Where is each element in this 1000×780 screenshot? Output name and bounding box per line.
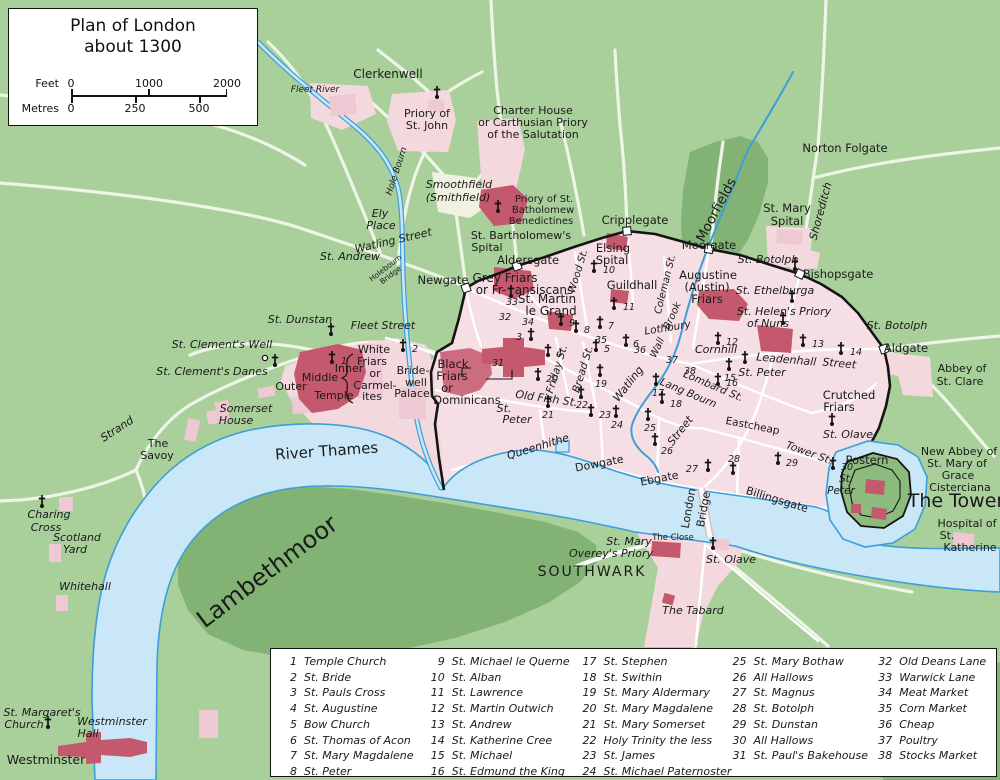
legend-entry-name: St. Katherine Cree bbox=[452, 733, 552, 749]
legend-column-3: 17St. Stephen18St. Swithin19St. Mary Ald… bbox=[580, 654, 730, 774]
scale-tick bbox=[226, 89, 228, 95]
legend-entry-23: 23St. James bbox=[580, 748, 730, 764]
legend-entry-name: St. Mary Aldermary bbox=[603, 685, 709, 701]
church-number-21: 21 bbox=[542, 410, 554, 421]
legend-entry-name: All Hallows bbox=[753, 670, 813, 686]
church-number-7: 7 bbox=[608, 321, 614, 332]
legend-entry-3: 3St. Pauls Cross bbox=[281, 685, 429, 701]
st-martin-2: le Grand bbox=[525, 304, 576, 318]
moorgate: Moorgate bbox=[682, 238, 736, 252]
cripplegate-gate bbox=[623, 227, 632, 236]
st-peter-cornhill: St. Peter bbox=[738, 366, 787, 379]
legend-entry-number: 31 bbox=[730, 748, 746, 764]
legend-entry-26: 26All Hallows bbox=[730, 670, 876, 686]
st-peter-wharf-2: Peter bbox=[502, 413, 532, 426]
st-clements-danes: St. Clement's Danes bbox=[156, 365, 268, 378]
cornhill: Cornhill bbox=[695, 343, 737, 356]
legend-entry-number: 38 bbox=[876, 748, 892, 764]
legend-entry-number: 17 bbox=[580, 654, 596, 670]
legend-entry-number: 23 bbox=[580, 748, 596, 764]
legend-entry-27: 27St. Magnus bbox=[730, 685, 876, 701]
charing-cross-1: Charing bbox=[28, 508, 71, 521]
legend-entry-name: St. Lawrence bbox=[452, 685, 523, 701]
legend-entry-16: 16St. Edmund the King bbox=[429, 764, 581, 780]
aldersgate: Aldersgate bbox=[497, 253, 559, 267]
scale-metres-label: Metres bbox=[11, 102, 59, 115]
legend-entry-name: St. Michael le Querne bbox=[452, 654, 570, 670]
legend-entry-10: 10St. Alban bbox=[429, 670, 581, 686]
num-33: 33 bbox=[506, 297, 518, 308]
scale-tick bbox=[71, 89, 73, 95]
legend-entry-name: Stocks Market bbox=[899, 748, 977, 764]
legend-entry-37: 37Poultry bbox=[876, 733, 994, 749]
legend-entry-number: 30 bbox=[730, 733, 746, 749]
legend-entry-name: Holy Trinity the less bbox=[603, 733, 712, 749]
bridewell-3: Palace bbox=[394, 387, 430, 400]
legend-entry-number: 34 bbox=[876, 685, 892, 701]
st-dunstan-west: St. Dunstan bbox=[268, 313, 332, 326]
black-friars-4: Dominicans bbox=[433, 393, 500, 407]
legend-entry-number: 18 bbox=[580, 670, 596, 686]
st-botolph-aldgate: St. Botolph bbox=[867, 319, 928, 332]
legend-entry-name: All Hallows bbox=[753, 733, 813, 749]
cripplegate: Cripplegate bbox=[602, 213, 669, 227]
temple: Temple bbox=[313, 389, 353, 402]
westminster-hall-2: Hall bbox=[77, 727, 98, 740]
legend-entry-name: Poultry bbox=[899, 733, 938, 749]
the-tower: The Tower bbox=[907, 490, 1000, 512]
the-savoy-2: Savoy bbox=[140, 449, 174, 462]
legend-entry-number: 4 bbox=[281, 701, 297, 717]
st-mary-overey-building bbox=[651, 541, 681, 558]
legend-entry-24: 24St. Michael Paternoster bbox=[580, 764, 730, 780]
crutched-friars-2: Friars bbox=[823, 400, 854, 414]
church-number-27: 27 bbox=[686, 464, 698, 475]
legend-entry-number: 11 bbox=[429, 685, 445, 701]
legend-entry-name: St. Bride bbox=[304, 670, 351, 686]
legend-entry-number: 27 bbox=[730, 685, 746, 701]
legend-entry-name: St. Paul's Bakehouse bbox=[753, 748, 868, 764]
legend-entry-name: Temple Church bbox=[304, 654, 386, 670]
church-number-19: 19 bbox=[595, 379, 607, 390]
st-mary-spital-2: Spital bbox=[771, 214, 804, 228]
st-andrew: St. Andrew bbox=[320, 250, 380, 263]
scale-metres-250: 250 bbox=[125, 102, 146, 115]
legend-entry-31: 31St. Paul's Bakehouse bbox=[730, 748, 876, 764]
legend-entry-name: St. Mary Bothaw bbox=[753, 654, 843, 670]
legend-entry-number: 12 bbox=[429, 701, 445, 717]
map-title-line2: about 1300 bbox=[9, 37, 257, 57]
legend-entry-number: 21 bbox=[580, 717, 596, 733]
church-number-9: 9 bbox=[569, 318, 575, 329]
map-stage: 1234567891011121314151617181920212223242… bbox=[0, 0, 1000, 780]
scale-metres-0: 0 bbox=[68, 102, 75, 115]
church-number-25: 25 bbox=[644, 423, 656, 434]
num-37: 37 bbox=[666, 355, 678, 366]
legend-entry-6: 6St. Thomas of Acon bbox=[281, 733, 429, 749]
num-35: 35 bbox=[595, 335, 607, 346]
legend-entry-32: 32Old Deans Lane bbox=[876, 654, 994, 670]
num-31: 31 bbox=[492, 358, 504, 369]
legend-entry-name: St. Stephen bbox=[603, 654, 667, 670]
legend-entry-number: 2 bbox=[281, 670, 297, 686]
title-box: Plan of London about 1300 Feet 0 1000 20… bbox=[8, 8, 258, 126]
white-friars-5: ites bbox=[362, 390, 382, 403]
legend-entry-8: 8St. Peter bbox=[281, 764, 429, 780]
legend-entry-number: 10 bbox=[429, 670, 445, 686]
legend-entry-21: 21St. Mary Somerset bbox=[580, 717, 730, 733]
legend-entry-name: St. Michael bbox=[452, 748, 512, 764]
legend-entry-name: St. Peter bbox=[304, 764, 351, 780]
scale-bar bbox=[71, 95, 227, 97]
church-number-14: 14 bbox=[850, 347, 862, 358]
legend-entry-name: St. Magnus bbox=[753, 685, 814, 701]
legend-entry-28: 28St. Botolph bbox=[730, 701, 876, 717]
clerkenwell: Clerkenwell bbox=[353, 67, 422, 81]
scale-metres-500: 500 bbox=[189, 102, 210, 115]
whitehall: Whitehall bbox=[59, 580, 111, 593]
num-32: 32 bbox=[499, 312, 511, 323]
st-helens-2: of Nuns bbox=[747, 317, 789, 330]
austin-friars-3: Friars bbox=[691, 292, 722, 306]
postern: Postern bbox=[846, 453, 889, 467]
legend-entry-number: 5 bbox=[281, 717, 297, 733]
church-number-24: 24 bbox=[611, 420, 623, 431]
legend-entry-number: 16 bbox=[429, 764, 445, 780]
legend-entry-number: 33 bbox=[876, 670, 892, 686]
legend-entry-22: 22Holy Trinity the less bbox=[580, 733, 730, 749]
church-number-2: 2 bbox=[412, 344, 418, 355]
legend-entry-name: St. Michael Paternoster bbox=[603, 764, 731, 780]
legend-column-1: 1Temple Church2St. Bride3St. Pauls Cross… bbox=[281, 654, 429, 774]
the-tabard: The Tabard bbox=[662, 604, 725, 617]
st-ethelburga: St. Ethelburga bbox=[736, 284, 815, 297]
tower-building-3 bbox=[871, 507, 887, 520]
legend-entry-1: 1Temple Church bbox=[281, 654, 429, 670]
legend-entry-number: 13 bbox=[429, 717, 445, 733]
st-botolph-bishopsgate: St. Botolph bbox=[738, 253, 799, 266]
fleet-river: Fleet River bbox=[291, 85, 341, 95]
legend-entry-18: 18St. Swithin bbox=[580, 670, 730, 686]
legend-entry-name: St. Dunstan bbox=[753, 717, 817, 733]
legend-entry-4: 4St. Augustine bbox=[281, 701, 429, 717]
legend-entry-number: 9 bbox=[429, 654, 445, 670]
church-number-18: 18 bbox=[670, 399, 682, 410]
legend-entry-number: 3 bbox=[281, 685, 297, 701]
legend-entry-name: St. Mary Somerset bbox=[603, 717, 705, 733]
aldgate: Aldgate bbox=[884, 341, 928, 355]
fleet-street: Fleet Street bbox=[351, 319, 416, 332]
legend-entry-name: St. Andrew bbox=[452, 717, 512, 733]
legend-entry-number: 37 bbox=[876, 733, 892, 749]
st-margarets-2: Church bbox=[4, 718, 43, 731]
st-mary-spital-1: St. Mary bbox=[763, 201, 811, 215]
legend-entry-11: 11St. Lawrence bbox=[429, 685, 581, 701]
legend-entry-29: 29St. Dunstan bbox=[730, 717, 876, 733]
legend-entry-number: 32 bbox=[876, 654, 892, 670]
hospital-katherine-3: Katherine bbox=[943, 541, 996, 554]
legend-entry-38: 38Stocks Market bbox=[876, 748, 994, 764]
legend-entry-number: 35 bbox=[876, 701, 892, 717]
legend-column-2: 9St. Michael le Querne10St. Alban11St. L… bbox=[429, 654, 581, 774]
legend-entry-number: 15 bbox=[429, 748, 445, 764]
num-34: 34 bbox=[522, 317, 534, 328]
st-clements-well: St. Clement's Well bbox=[172, 338, 273, 351]
abbey-st-clare-1: Abbey of bbox=[938, 362, 988, 375]
legend-entry-name: St. Martin Outwich bbox=[452, 701, 554, 717]
num-36: 36 bbox=[634, 345, 646, 356]
whitehall-building-2 bbox=[56, 595, 68, 611]
map-title-line1: Plan of London bbox=[9, 16, 257, 36]
smithfield-2: (Smithfield) bbox=[426, 191, 491, 204]
the-close: The Close bbox=[651, 533, 694, 543]
legend-entry-number: 19 bbox=[580, 685, 596, 701]
map-legend: 1Temple Church2St. Bride3St. Pauls Cross… bbox=[270, 648, 997, 777]
st-olave-city: St. Olave bbox=[823, 428, 873, 441]
legend-entry-name: St. Mary Magdalene bbox=[603, 701, 713, 717]
priory-barth-2: Batholomew bbox=[512, 205, 574, 216]
scale-feet-label: Feet bbox=[11, 77, 59, 90]
priory-barth-1: Priory of St. bbox=[515, 194, 573, 205]
legend-entry-number: 14 bbox=[429, 733, 445, 749]
well-marker-icon bbox=[262, 355, 267, 360]
legend-entry-number: 22 bbox=[580, 733, 596, 749]
church-number-26: 26 bbox=[661, 446, 673, 457]
church-number-23: 23 bbox=[599, 410, 611, 421]
smithfield-1: Smoothfield bbox=[426, 178, 493, 191]
legend-entry-name: Corn Market bbox=[899, 701, 967, 717]
st-barts-spital-2: Spital bbox=[471, 241, 502, 254]
legend-entry-12: 12St. Martin Outwich bbox=[429, 701, 581, 717]
church-number-13: 13 bbox=[812, 339, 824, 350]
legend-entry-number: 25 bbox=[730, 654, 746, 670]
westminster-hall-building bbox=[199, 710, 218, 738]
norton-folgate: Norton Folgate bbox=[802, 141, 887, 155]
scotland-yard-2: Yard bbox=[63, 543, 88, 556]
legend-entry-25: 25St. Mary Bothaw bbox=[730, 654, 876, 670]
abbey-st-clare-2: St. Clare bbox=[937, 375, 984, 388]
church-number-22: 22 bbox=[576, 400, 588, 411]
legend-entry-34: 34Meat Market bbox=[876, 685, 994, 701]
legend-entry-number: 29 bbox=[730, 717, 746, 733]
elsing-2: Spital bbox=[596, 253, 629, 267]
legend-entry-number: 24 bbox=[580, 764, 596, 780]
legend-entry-33: 33Warwick Lane bbox=[876, 670, 994, 686]
legend-entry-number: 7 bbox=[281, 748, 297, 764]
guildhall: Guildhall bbox=[607, 278, 658, 292]
legend-entry-name: St. Alban bbox=[452, 670, 502, 686]
legend-entry-name: St. Thomas of Acon bbox=[304, 733, 411, 749]
legend-entry-5: 5Bow Church bbox=[281, 717, 429, 733]
legend-entry-15: 15St. Michael bbox=[429, 748, 581, 764]
clerkenwell-building bbox=[329, 94, 357, 117]
scale-tick bbox=[148, 89, 150, 95]
white-tower-building bbox=[865, 479, 885, 495]
tower-building-2 bbox=[851, 504, 861, 513]
legend-entry-13: 13St. Andrew bbox=[429, 717, 581, 733]
grey-friars-2: or Fr- bbox=[476, 283, 507, 297]
westminster: Westminster bbox=[7, 752, 86, 767]
charterhouse-3: of the Salutation bbox=[487, 128, 579, 141]
church-number-8: 8 bbox=[584, 325, 590, 336]
legend-entry-number: 28 bbox=[730, 701, 746, 717]
st-mary-overey-2: Overey's Priory bbox=[569, 547, 653, 560]
legend-entry-number: 26 bbox=[730, 670, 746, 686]
legend-entry-30: 30All Hallows bbox=[730, 733, 876, 749]
legend-entry-number: 8 bbox=[281, 764, 297, 780]
legend-entry-name: Warwick Lane bbox=[899, 670, 975, 686]
legend-entry-name: Cheap bbox=[899, 717, 934, 733]
legend-entry-name: St. Pauls Cross bbox=[304, 685, 385, 701]
ely-place-2: Place bbox=[366, 219, 395, 232]
legend-entry-name: Old Deans Lane bbox=[899, 654, 986, 670]
st-olave-southwark: St. Olave bbox=[706, 553, 756, 566]
priory-st-john-2: St. John bbox=[406, 119, 448, 132]
legend-entry-2: 2St. Bride bbox=[281, 670, 429, 686]
somerset-house-2: House bbox=[219, 414, 254, 427]
legend-entry-7: 7St. Mary Magdalene bbox=[281, 748, 429, 764]
st-peter-tower-1: St. bbox=[839, 473, 853, 485]
legend-entry-name: Meat Market bbox=[899, 685, 968, 701]
num-38: 38 bbox=[684, 366, 696, 377]
southwark: SOUTHWARK bbox=[538, 564, 647, 580]
middle-temple: Middle bbox=[302, 371, 339, 384]
legend-entry-14: 14St. Katherine Cree bbox=[429, 733, 581, 749]
legend-entry-19: 19St. Mary Aldermary bbox=[580, 685, 730, 701]
church-number-11: 11 bbox=[623, 302, 635, 313]
church-number-28: 28 bbox=[728, 454, 740, 465]
legend-entry-9: 9St. Michael le Querne bbox=[429, 654, 581, 670]
legend-entry-number: 36 bbox=[876, 717, 892, 733]
legend-entry-name: St. Swithin bbox=[603, 670, 662, 686]
church-number-3: 3 bbox=[516, 332, 522, 343]
whitehall-building-1 bbox=[49, 544, 61, 562]
legend-entry-name: St. Botolph bbox=[753, 701, 814, 717]
priory-barth-3: Benedictines bbox=[509, 216, 574, 227]
church-number-29: 29 bbox=[786, 458, 798, 469]
legend-column-5: 32Old Deans Lane33Warwick Lane34Meat Mar… bbox=[876, 654, 994, 774]
legend-entry-name: St. Edmund the King bbox=[452, 764, 565, 780]
st-peter-tower-2: Peter bbox=[827, 485, 855, 497]
legend-entry-name: St. Augustine bbox=[304, 701, 378, 717]
newgate: Newgate bbox=[417, 273, 468, 287]
legend-entry-20: 20St. Mary Magdalene bbox=[580, 701, 730, 717]
legend-column-4: 25St. Mary Bothaw26All Hallows27St. Magn… bbox=[730, 654, 876, 774]
legend-entry-number: 1 bbox=[281, 654, 297, 670]
spital-building bbox=[776, 229, 803, 245]
legend-entry-36: 36Cheap bbox=[876, 717, 994, 733]
legend-entry-number: 20 bbox=[580, 701, 596, 717]
bishopsgate: Bishopsgate bbox=[803, 267, 874, 281]
legend-entry-name: St. Mary Magdalene bbox=[304, 748, 414, 764]
inner-temple: Inner bbox=[335, 362, 364, 375]
legend-entry-35: 35Corn Market bbox=[876, 701, 994, 717]
legend-entry-number: 6 bbox=[281, 733, 297, 749]
legend-entry-name: Bow Church bbox=[304, 717, 370, 733]
legend-entry-17: 17St. Stephen bbox=[580, 654, 730, 670]
legend-entry-name: St. James bbox=[603, 748, 655, 764]
